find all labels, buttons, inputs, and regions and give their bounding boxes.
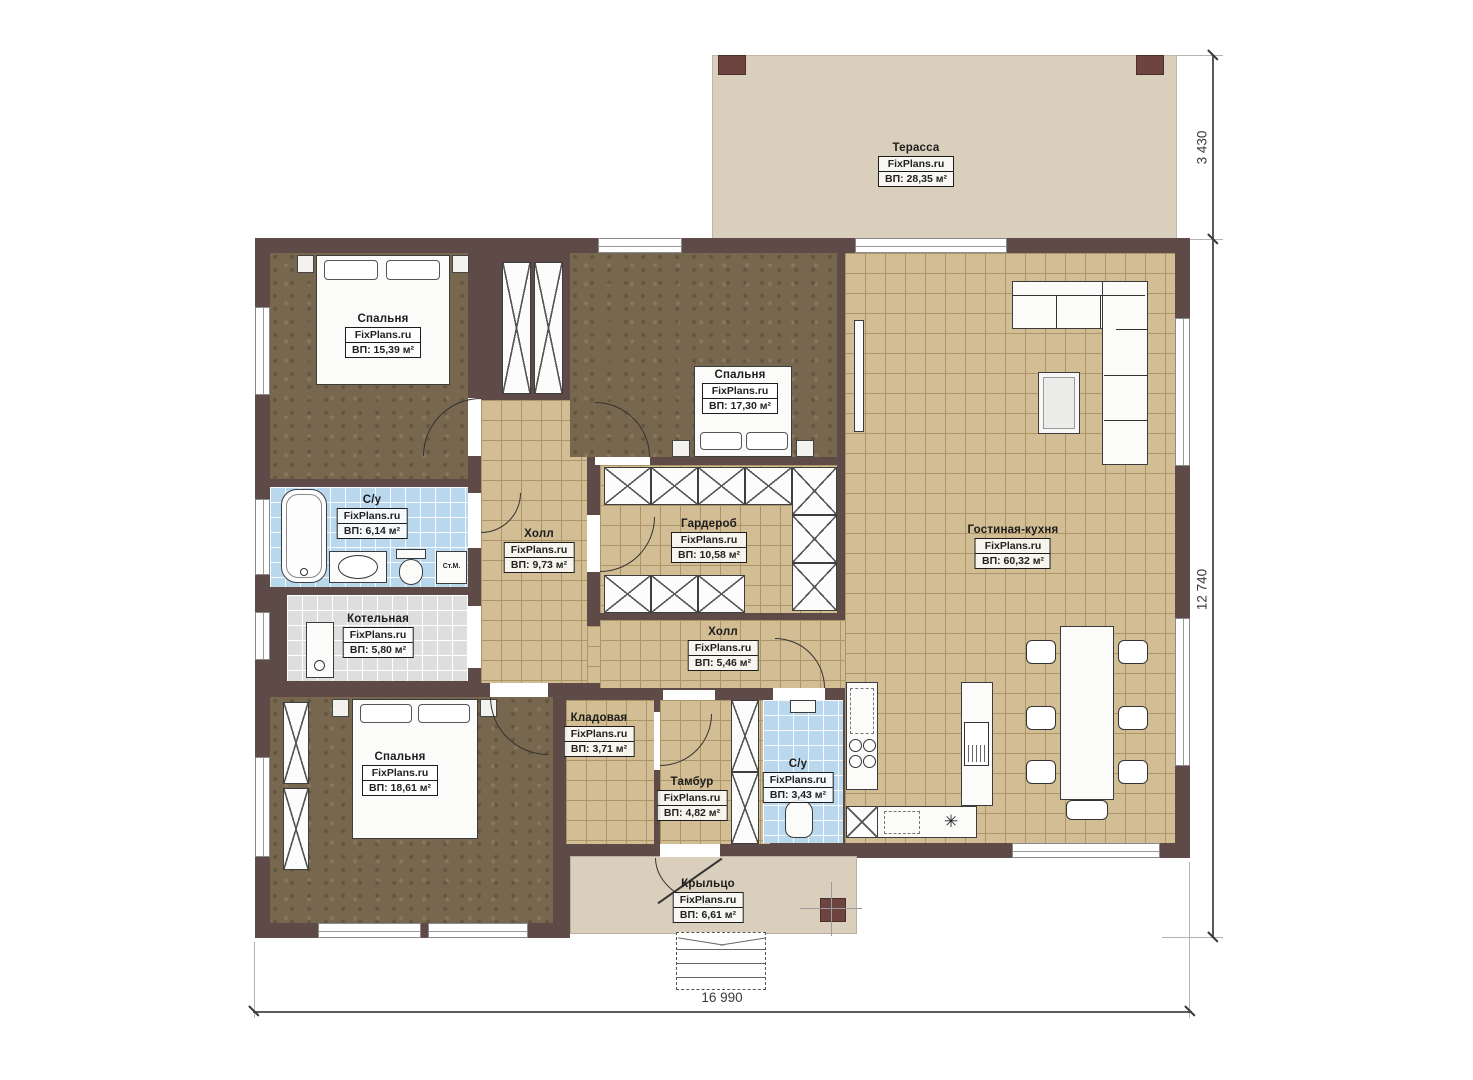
entry-steps — [676, 932, 766, 990]
pillow — [418, 704, 470, 723]
room-area: ВП: 10,58 м² — [672, 548, 746, 562]
watermark: FixPlans.ru — [674, 893, 743, 908]
room-area: ВП: 60,32 м² — [976, 554, 1050, 568]
floor-hall-connector — [587, 626, 600, 683]
dining-chair — [1026, 706, 1056, 730]
window-bedroom-3-bottom-1 — [318, 923, 421, 938]
window-living-bottom — [1012, 843, 1160, 858]
room-label-bedroom-3: Спальня FixPlans.ru ВП: 18,61 м² — [362, 751, 438, 796]
terrace-post-right — [1136, 55, 1164, 75]
wardrobe-cabinet — [698, 575, 745, 613]
room-name: Крыльцо — [673, 878, 744, 890]
room-area: ВП: 28,35 м² — [879, 172, 953, 186]
door-gap-boiler — [468, 606, 481, 668]
wardrobe-cabinet — [792, 563, 837, 611]
nightstand — [452, 255, 469, 273]
porch-post-axis-v — [831, 882, 832, 936]
wardrobe-cabinet — [792, 515, 837, 563]
extension-line — [1189, 862, 1190, 1018]
room-name: Терасса — [878, 142, 954, 154]
stove-burner — [863, 755, 876, 768]
wardrobe-cabinet — [651, 467, 698, 505]
window-bedroom-3-bottom-2 — [428, 923, 528, 938]
dining-chair — [1118, 706, 1148, 730]
room-label-vestibule: Тамбур FixPlans.ru ВП: 4,82 м² — [657, 776, 728, 821]
stove-burner — [863, 739, 876, 752]
window-living-right-1 — [1175, 318, 1190, 466]
step-line — [677, 949, 765, 950]
room-label-terrace: Терасса FixPlans.ru ВП: 28,35 м² — [878, 142, 954, 187]
sofa-seam — [1056, 296, 1057, 328]
oven-grille — [968, 745, 985, 762]
watermark: FixPlans.ru — [672, 533, 746, 548]
pillow — [700, 432, 742, 450]
nightstand — [297, 255, 314, 273]
window-bedroom-1 — [255, 307, 270, 395]
watermark: FixPlans.ru — [338, 509, 407, 524]
room-area: ВП: 17,30 м² — [703, 399, 777, 413]
toilet-tank — [396, 549, 426, 559]
porch-post — [820, 898, 846, 922]
step-line — [677, 977, 765, 978]
dimension-house-depth: 12 740 — [1195, 556, 1210, 624]
sink-bowl — [338, 555, 378, 579]
door-gap-bathroom-1 — [468, 493, 481, 548]
dimension-line-right — [1212, 55, 1214, 938]
room-label-bedroom-2: Спальня FixPlans.ru ВП: 17,30 м² — [702, 369, 778, 414]
dining-table — [1060, 626, 1114, 800]
room-label-porch: Крыльцо FixPlans.ru ВП: 6,61 м² — [673, 878, 744, 923]
sofa-seam — [1116, 329, 1148, 330]
room-name: Котельная — [343, 613, 414, 625]
room-label-wardrobe: Гардероб FixPlans.ru ВП: 10,58 м² — [671, 518, 747, 563]
dining-chair — [1118, 640, 1148, 664]
room-name: С/у — [337, 494, 408, 506]
room-label-boiler: Котельная FixPlans.ru ВП: 5,80 м² — [343, 613, 414, 658]
wall-sink — [790, 700, 816, 713]
extension-line — [1190, 239, 1223, 240]
watermark: FixPlans.ru — [879, 157, 953, 172]
dining-chair — [1026, 640, 1056, 664]
washing-machine-label: Ст.М. — [436, 563, 467, 570]
room-area: ВП: 5,46 м² — [689, 656, 758, 670]
room-label-living-kitchen: Гостиная-кухня FixPlans.ru ВП: 60,32 м² — [968, 524, 1059, 569]
window-living-right-2 — [1175, 618, 1190, 766]
room-name: Кладовая — [564, 712, 635, 724]
dishwasher-outline — [850, 688, 874, 734]
window-bedroom-2 — [598, 238, 682, 253]
wardrobe-cabinet — [604, 575, 651, 613]
step-diagonal — [720, 937, 766, 945]
watermark: FixPlans.ru — [505, 543, 574, 558]
watermark: FixPlans.ru — [658, 791, 727, 806]
sofa-seam — [1100, 296, 1101, 328]
room-label-bathroom-1: С/у FixPlans.ru ВП: 6,14 м² — [337, 494, 408, 539]
dining-chair — [1118, 760, 1148, 784]
closet-panel — [731, 700, 759, 772]
nightstand — [332, 699, 349, 717]
wardrobe-cabinet — [651, 575, 698, 613]
watermark: FixPlans.ru — [764, 773, 833, 788]
dimension-line-bottom — [253, 1011, 1192, 1013]
dining-chair-end — [1066, 800, 1108, 820]
window-boiler — [255, 612, 270, 660]
pillow — [746, 432, 788, 450]
room-area: ВП: 3,43 м² — [764, 788, 833, 802]
wardrobe-cabinet — [698, 467, 745, 505]
dimension-terrace-depth: 3 430 — [1195, 118, 1210, 178]
wardrobe-cabinet — [604, 467, 651, 505]
door-gap-entry — [660, 844, 720, 857]
room-name: Гардероб — [671, 518, 747, 530]
room-name: Спальня — [345, 313, 421, 325]
sofa-seam — [1104, 375, 1148, 376]
window-bathroom-1 — [255, 499, 270, 575]
watermark: FixPlans.ru — [976, 539, 1050, 554]
room-area: ВП: 9,73 м² — [505, 558, 574, 572]
toilet-bowl — [785, 800, 813, 838]
kitchen-sink-icon: ✳ — [928, 813, 974, 830]
tv-panel — [854, 320, 864, 432]
room-name: Холл — [688, 626, 759, 638]
step-diagonal — [678, 937, 724, 945]
door-gap-bedroom-2 — [595, 457, 650, 465]
nightstand — [672, 440, 690, 457]
closet-panel — [283, 702, 309, 784]
closet-panel — [502, 262, 531, 394]
stove-burner — [849, 755, 862, 768]
room-label-hall-2: Холл FixPlans.ru ВП: 5,46 м² — [688, 626, 759, 671]
room-name: Гостиная-кухня — [968, 524, 1059, 536]
cabinet-outline — [884, 811, 920, 834]
oven — [964, 722, 989, 766]
boiler-dial — [314, 660, 325, 671]
room-area: ВП: 4,82 м² — [658, 806, 727, 820]
room-area: ВП: 6,14 м² — [338, 524, 407, 538]
room-area: ВП: 3,71 м² — [565, 742, 634, 756]
watermark: FixPlans.ru — [346, 328, 420, 343]
watermark: FixPlans.ru — [565, 727, 634, 742]
floor-plan: Ст.М. ✳ — [0, 0, 1473, 1080]
pillow — [386, 260, 440, 280]
nightstand — [796, 440, 814, 457]
room-name: Тамбур — [657, 776, 728, 788]
watermark: FixPlans.ru — [689, 641, 758, 656]
sofa-seam — [1012, 295, 1145, 296]
window-terrace-door — [855, 238, 1007, 253]
door-gap-bedroom-3 — [490, 683, 548, 697]
watermark: FixPlans.ru — [703, 384, 777, 399]
closet-panel — [534, 262, 563, 394]
pillow — [324, 260, 378, 280]
pillow — [360, 704, 412, 723]
window-bedroom-3-left — [255, 757, 270, 857]
room-name: С/у — [763, 758, 834, 770]
watermark: FixPlans.ru — [363, 766, 437, 781]
closet-panel — [283, 788, 309, 870]
door-gap-vestibule — [663, 690, 715, 700]
door-gap-bathroom-2 — [773, 688, 825, 700]
room-area: ВП: 5,80 м² — [344, 643, 413, 657]
room-area: ВП: 18,61 м² — [363, 781, 437, 795]
dining-chair — [1026, 760, 1056, 784]
terrace-post-left — [718, 55, 746, 75]
wardrobe-cabinet — [792, 467, 837, 515]
door-gap-wardrobe — [587, 515, 600, 572]
room-name: Холл — [504, 528, 575, 540]
bathtub-drain — [300, 568, 308, 576]
step-line — [677, 963, 765, 964]
closet-panel — [731, 772, 759, 844]
sofa-vertical — [1102, 281, 1148, 465]
room-name: Спальня — [362, 751, 438, 763]
watermark: FixPlans.ru — [344, 628, 413, 643]
wardrobe-cabinet — [745, 467, 792, 505]
dimension-house-width: 16 990 — [682, 990, 762, 1005]
stove-burner — [849, 739, 862, 752]
room-label-pantry: Кладовая FixPlans.ru ВП: 3,71 м² — [564, 712, 635, 757]
room-label-bedroom-1: Спальня FixPlans.ru ВП: 15,39 м² — [345, 313, 421, 358]
room-name: Спальня — [702, 369, 778, 381]
corner-cabinet — [846, 806, 878, 838]
toilet-bowl — [399, 559, 423, 585]
room-area: ВП: 15,39 м² — [346, 343, 420, 357]
sofa-seam — [1104, 420, 1148, 421]
room-label-hall-1: Холл FixPlans.ru ВП: 9,73 м² — [504, 528, 575, 573]
room-area: ВП: 6,61 м² — [674, 908, 743, 922]
extension-line — [254, 942, 255, 1018]
room-label-bathroom-2: С/у FixPlans.ru ВП: 3,43 м² — [763, 758, 834, 803]
coffee-table — [1038, 372, 1080, 434]
